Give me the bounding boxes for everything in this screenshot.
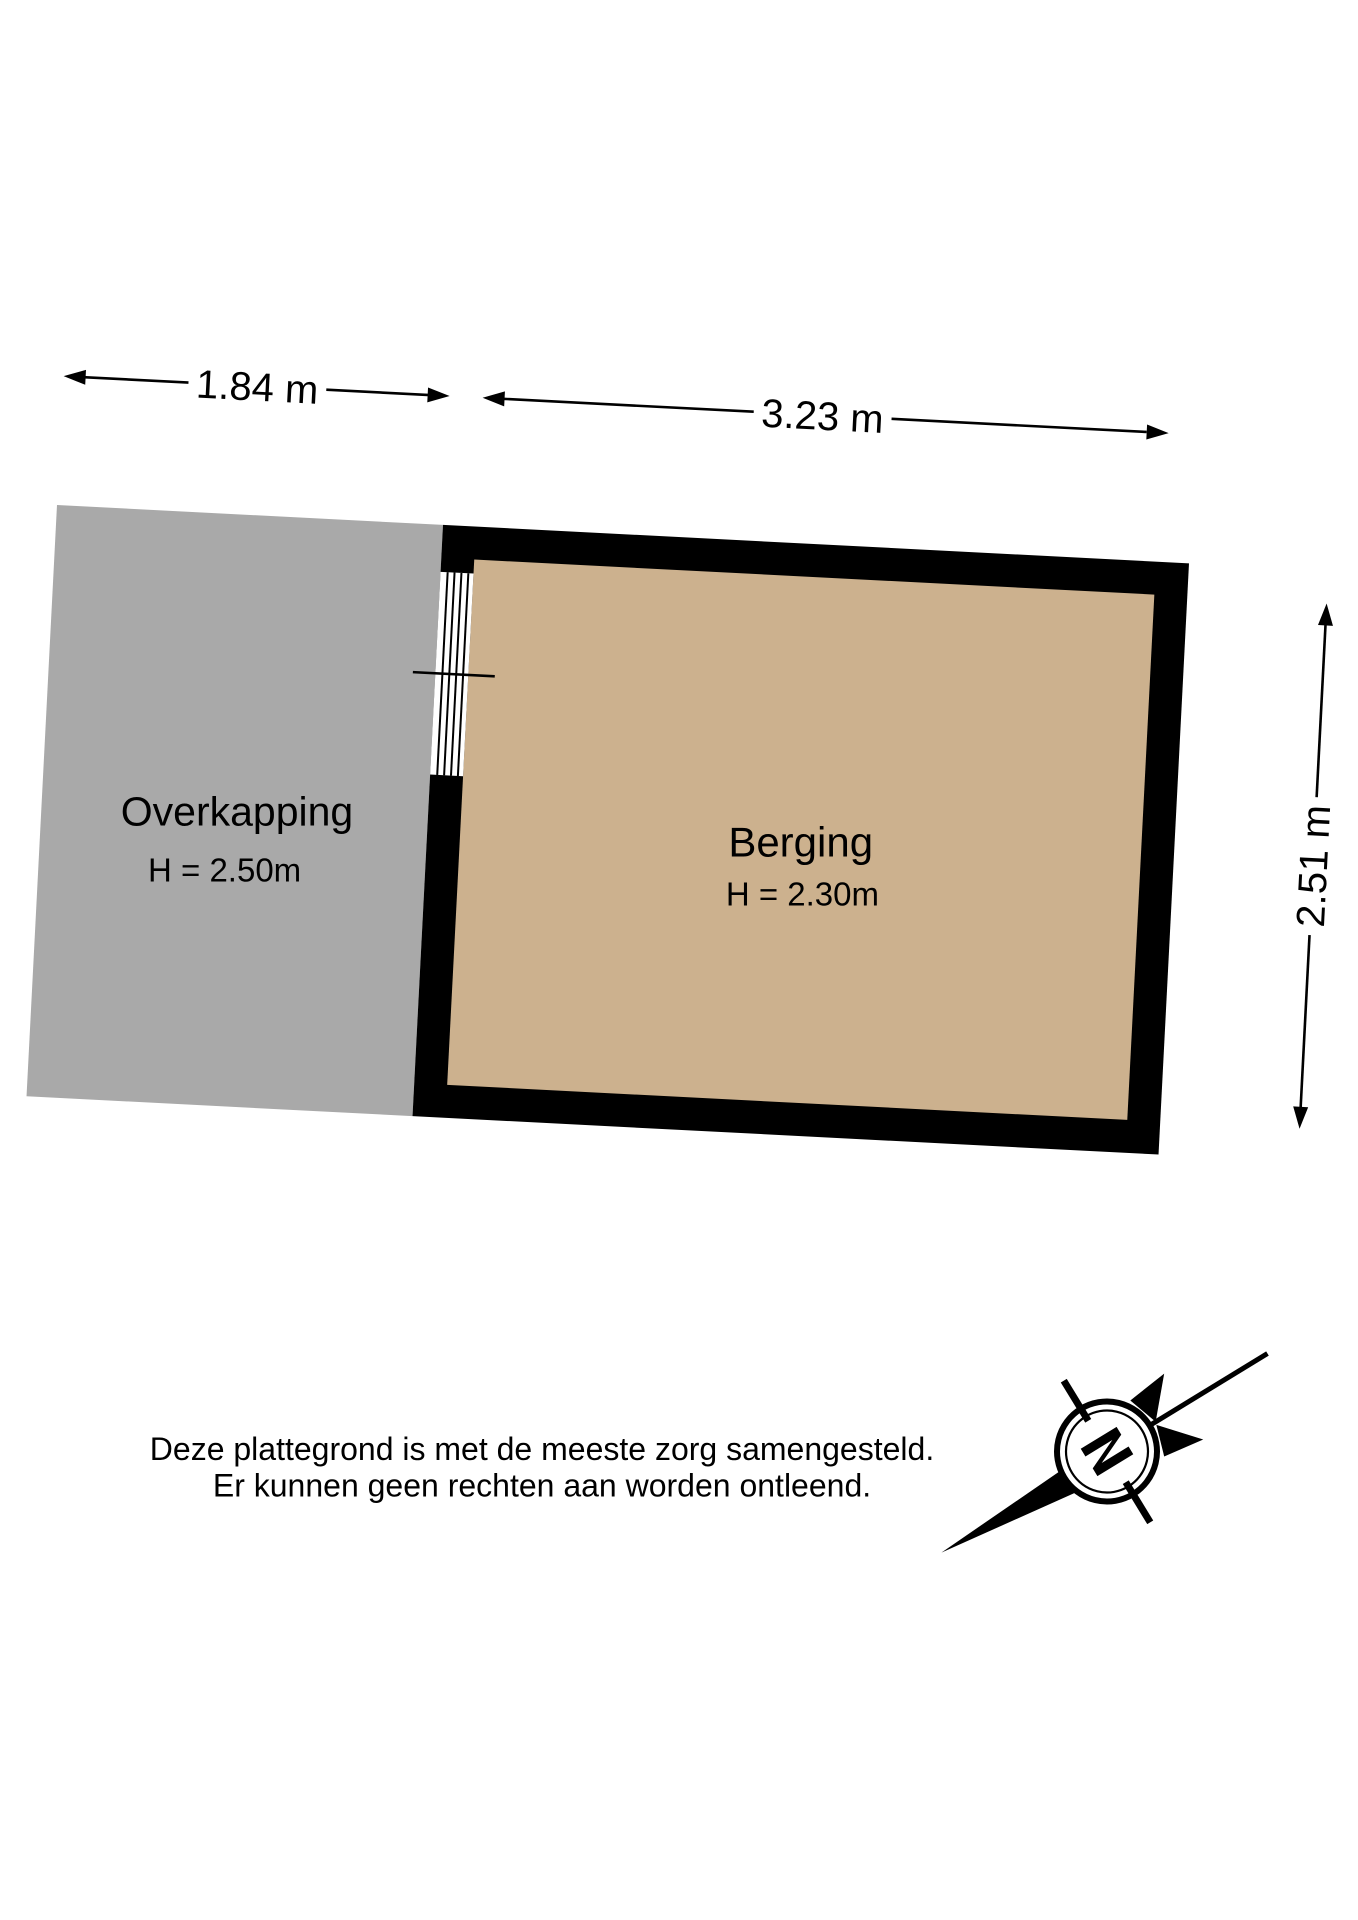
svg-text:Berging: Berging	[728, 818, 873, 865]
svg-text:H = 2.50m: H = 2.50m	[148, 851, 301, 888]
svg-text:Deze plattegrond is met de mee: Deze plattegrond is met de meeste zorg s…	[150, 1431, 934, 1467]
svg-text:H = 2.30m: H = 2.30m	[726, 876, 879, 913]
svg-text:Overkapping: Overkapping	[121, 789, 353, 835]
svg-text:Er kunnen geen rechten aan wor: Er kunnen geen rechten aan worden ontlee…	[213, 1467, 871, 1503]
svg-text:3.23 m: 3.23 m	[760, 392, 884, 442]
svg-text:1.84 m: 1.84 m	[195, 363, 319, 413]
svg-text:2.51 m: 2.51 m	[1289, 804, 1339, 928]
